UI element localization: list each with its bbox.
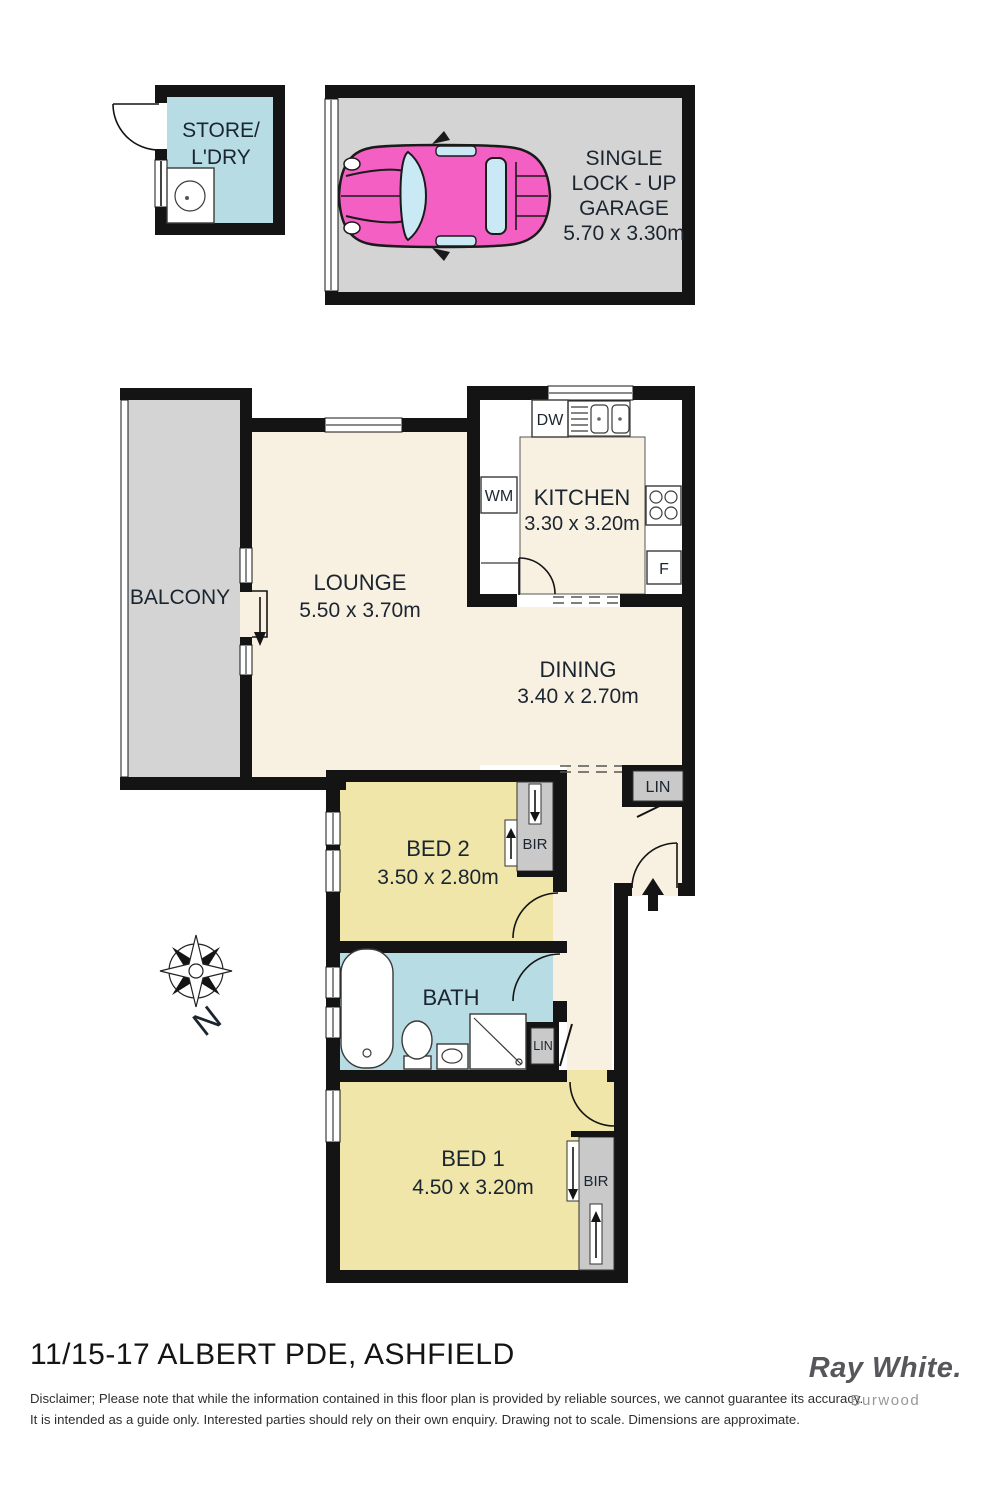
linen-hall-label: LIN xyxy=(646,779,671,796)
agency-logo: Ray White. Burwood xyxy=(809,1352,962,1409)
disclaimer-line-2: It is intended as a guide only. Interest… xyxy=(30,1409,863,1430)
bath-label: BATH xyxy=(422,985,479,1010)
balcony-label: BALCONY xyxy=(130,586,230,609)
bed1-dims: 4.50 x 3.20m xyxy=(412,1176,533,1199)
bathtub-icon xyxy=(341,949,393,1068)
toilet-icon xyxy=(402,1021,432,1069)
garage-label-1: SINGLE xyxy=(585,147,662,170)
floorplan-sheet: STORE/ L'DRY SINGLE LOCK - UP GA xyxy=(0,0,1000,1500)
garage-label-2: LOCK - UP xyxy=(571,172,676,195)
linen-bath: LIN xyxy=(526,1022,559,1070)
hall-floor xyxy=(567,883,612,1082)
store-label: STORE/ xyxy=(182,119,260,142)
agency-office: Burwood xyxy=(809,1392,962,1409)
linen-hall: LIN xyxy=(622,765,695,807)
room-garage: SINGLE LOCK - UP GARAGE 5.70 x 3.30m xyxy=(325,85,695,305)
agency-brand: Ray White. xyxy=(809,1352,962,1385)
store-label-2: L'DRY xyxy=(191,146,251,169)
garage-dims: 5.70 x 3.30m xyxy=(563,222,684,245)
shower-icon xyxy=(470,1014,526,1069)
lounge-label: LOUNGE xyxy=(314,570,407,595)
bed2-robe-label: BIR xyxy=(522,836,547,853)
bed2-dims: 3.50 x 2.80m xyxy=(377,866,498,889)
kitchen-dims: 3.30 x 3.20m xyxy=(524,513,640,535)
balcony-rail xyxy=(121,400,128,777)
disclaimer: Disclaimer; Please note that while the i… xyxy=(30,1388,863,1430)
dining-label: DINING xyxy=(540,657,617,682)
washing-machine-label: WM xyxy=(485,488,513,505)
compass-north-label: N xyxy=(186,999,229,1044)
cooktop-icon xyxy=(646,486,681,525)
disclaimer-line-1: Disclaimer; Please note that while the i… xyxy=(30,1388,863,1409)
washing-machine-icon xyxy=(167,168,214,223)
dining-dims: 3.40 x 2.70m xyxy=(517,685,638,708)
bed1-label: BED 1 xyxy=(441,1146,505,1171)
floor-plan: STORE/ L'DRY SINGLE LOCK - UP GA xyxy=(0,0,1000,1320)
bed1-robe-label: BIR xyxy=(583,1173,608,1190)
lounge-dims: 5.50 x 3.70m xyxy=(299,599,420,622)
dishwasher-label: DW xyxy=(537,412,565,429)
kitchen-label: KITCHEN xyxy=(534,485,631,510)
vanity-icon xyxy=(437,1044,468,1069)
car-icon xyxy=(339,131,550,261)
garage-label-3: GARAGE xyxy=(579,197,669,220)
bed2-label: BED 2 xyxy=(406,836,470,861)
property-address: 11/15-17 ALBERT PDE, ASHFIELD xyxy=(30,1338,515,1372)
store-door-arc xyxy=(113,104,159,150)
compass-icon: N xyxy=(160,935,232,1044)
fridge-label: F xyxy=(659,561,669,578)
linen-bath-label: LIN xyxy=(533,1039,552,1053)
room-store-laundry: STORE/ L'DRY xyxy=(113,85,285,235)
